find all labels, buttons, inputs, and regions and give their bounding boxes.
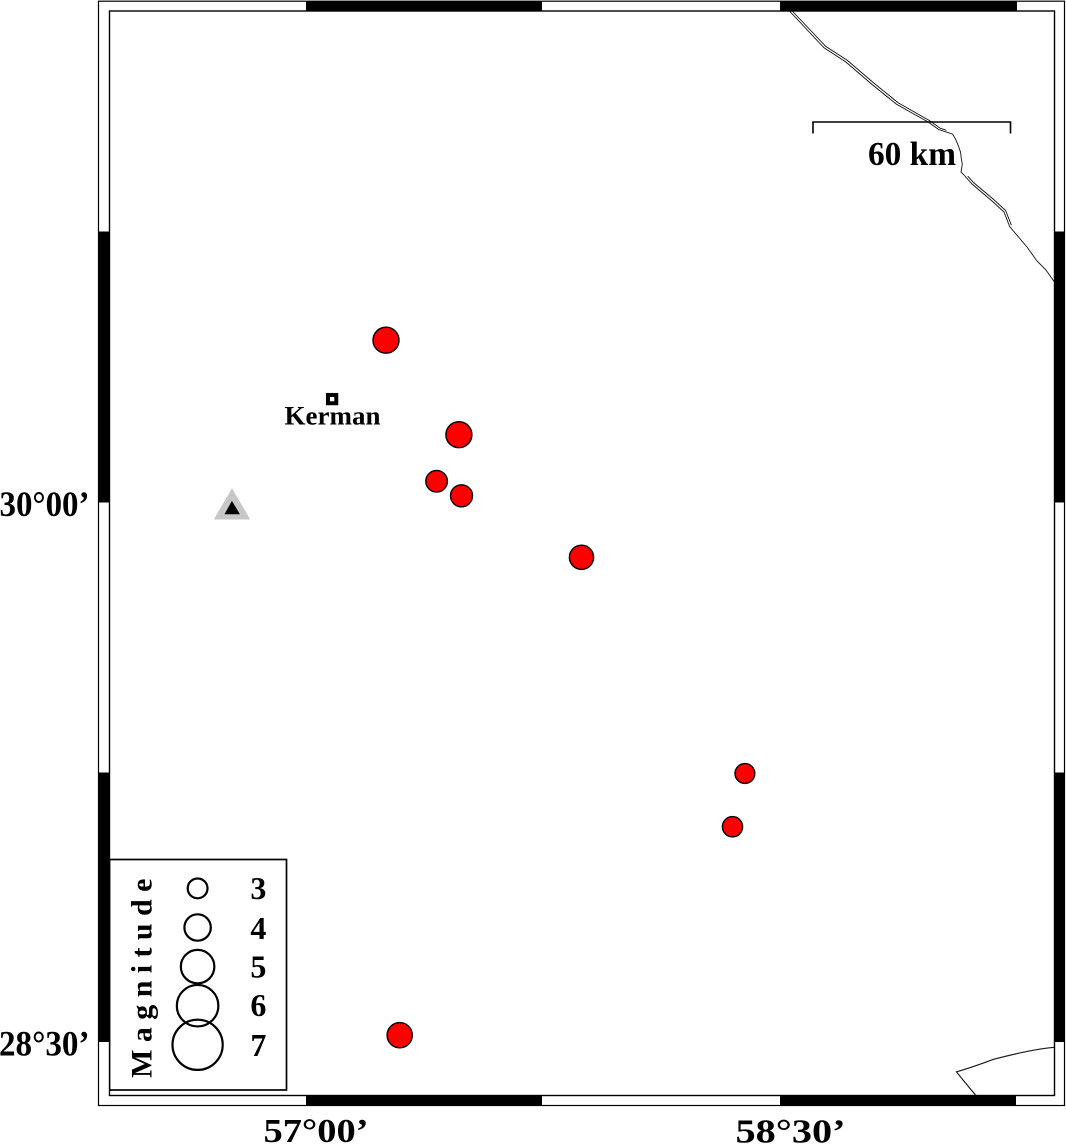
svg-text:3: 3 [250,870,266,906]
svg-text:7: 7 [250,1027,266,1063]
svg-text:5: 5 [250,949,266,985]
svg-text:30°00’: 30°00’ [0,484,90,524]
svg-text:60 km: 60 km [868,136,956,173]
svg-text:Kerman: Kerman [285,401,382,430]
svg-text:57°00’: 57°00’ [264,1113,369,1144]
svg-text:Magnitude: Magnitude [126,871,159,1078]
svg-text:28°30’: 28°30’ [0,1023,90,1063]
svg-text:6: 6 [250,987,266,1023]
svg-text:4: 4 [250,910,266,946]
svg-text:58°30’: 58°30’ [736,1113,846,1144]
